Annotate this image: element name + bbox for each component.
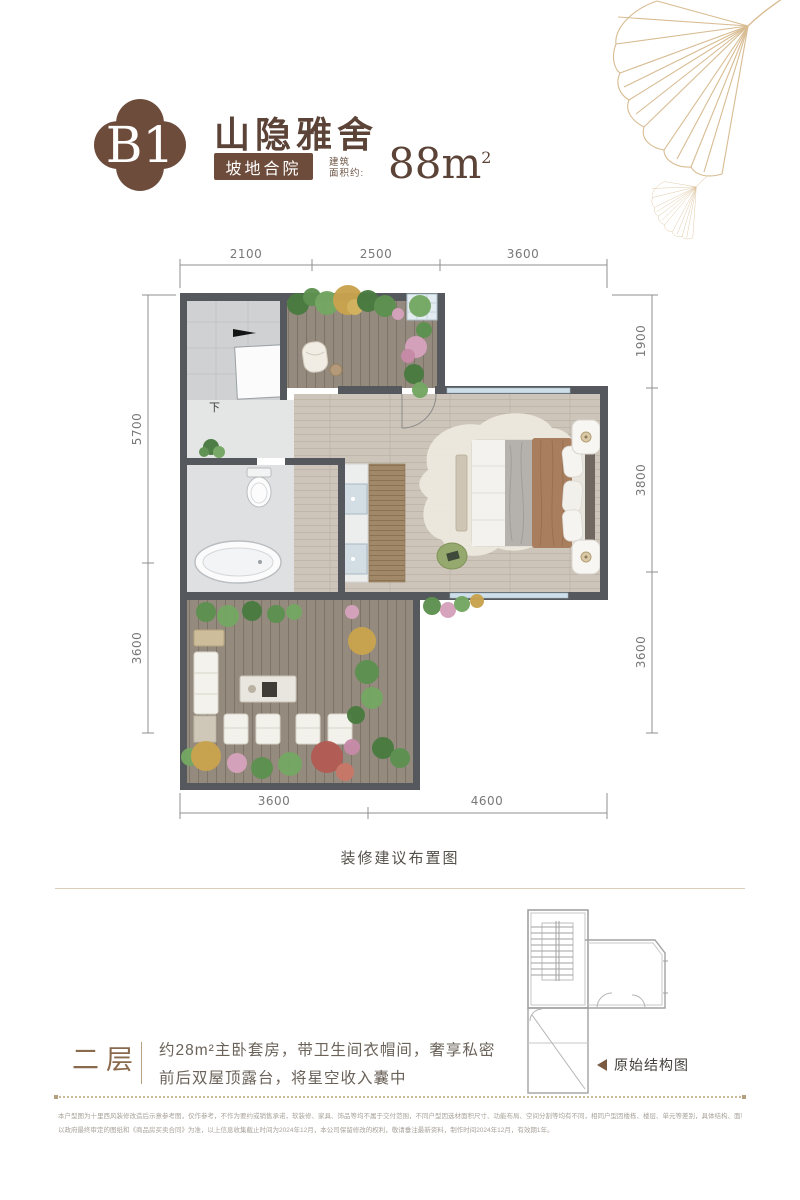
floor-plan <box>130 240 670 840</box>
dim-label-right-2: 3800 <box>634 464 648 497</box>
area-label: 建筑 面积约: <box>329 157 364 179</box>
page-title: 山隐雅舍 <box>214 106 378 158</box>
dim-label-right-1: 1900 <box>634 325 648 358</box>
wardrobe-closet <box>339 464 405 582</box>
dim-label-bottom-2: 4600 <box>471 794 504 808</box>
beanbag-chair <box>437 543 467 569</box>
section-divider <box>55 888 745 889</box>
disclaimer-line1: 本户型图为十里西风装修改造后示意参考图，仅作参考，不作为要约或销售承诺，软装修、… <box>58 1112 742 1122</box>
ginkgo-leaf-icon <box>600 0 800 240</box>
disclaimer-line2: 以政府最终审定的图纸和《商品房买卖合同》为准，以上信息收集截止时间为2024年1… <box>58 1126 742 1136</box>
toilet <box>247 468 271 507</box>
floor-description-line2: 前后双屋顶露台，将星空收入囊中 <box>159 1065 495 1093</box>
floor-description-line1: 约28m²主卧套房，带卫生间衣帽间，奢享私密 <box>159 1037 495 1065</box>
stair-direction-label: 下 <box>209 399 220 415</box>
structure-label: 原始结构图 <box>614 1055 689 1075</box>
dim-label-right-3: 3600 <box>634 636 648 669</box>
dim-label-bottom-1: 3600 <box>258 794 291 808</box>
structure-label-row: 原始结构图 <box>597 1055 689 1075</box>
unit-code: B1 <box>94 99 186 191</box>
bathtub <box>195 541 281 583</box>
floor-label: 二层 <box>72 1038 140 1077</box>
dim-label-top-2: 2500 <box>360 247 393 261</box>
left-triangle-icon <box>597 1059 607 1071</box>
plan-caption: 装修建议布置图 <box>300 847 500 868</box>
dim-label-top-1: 2100 <box>230 247 263 261</box>
area-label-bottom: 面积约: <box>329 168 364 179</box>
floor-description: 约28m²主卧套房，带卫生间衣帽间，奢享私密 前后双屋顶露台，将星空收入囊中 <box>159 1037 495 1093</box>
floor-label-divider <box>141 1042 142 1084</box>
dotted-divider <box>55 1096 745 1098</box>
dim-label-left-1: 5700 <box>130 413 144 446</box>
area-label-top: 建筑 <box>329 157 364 168</box>
dim-label-top-3: 3600 <box>507 247 540 261</box>
type-tag: 坡地合院 <box>214 153 313 180</box>
bed <box>456 436 595 550</box>
dim-label-left-2: 3600 <box>130 632 144 665</box>
area-value: 88m2 <box>388 143 491 185</box>
floorplan-page: B1 山隐雅舍 坡地合院 建筑 面积约: 88m2 <box>0 0 800 1200</box>
